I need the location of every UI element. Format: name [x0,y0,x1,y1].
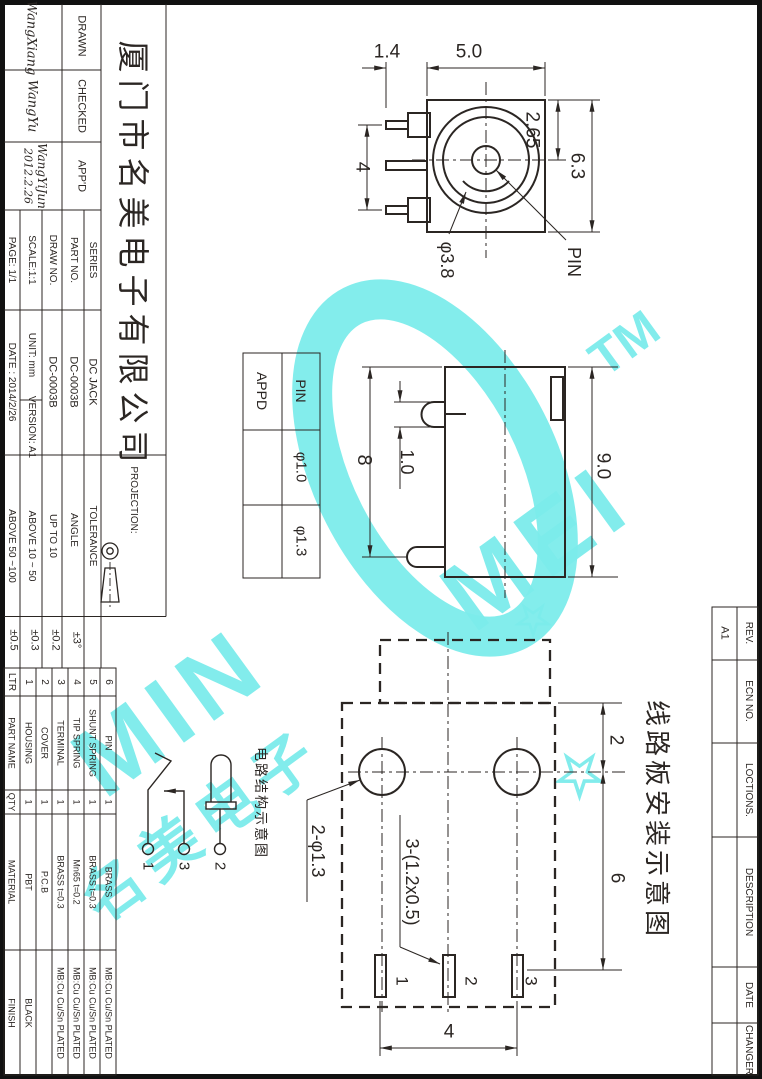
tolerance-value: ±0.5 [8,629,19,650]
bom-qty: 1 [88,799,97,804]
approved-signature: WangYiJun [36,143,48,209]
engineering-drawing-sheet: MIN MEI TM 名美电子 ☆ ☆ [0,0,762,1079]
pad-number: 1 [394,976,411,985]
drawn-signature: WangXiang [25,1,38,76]
projection-label: PROJECTION: [128,466,138,533]
bom-finish: MB:Cu Cu/Sn PLATED [72,967,81,1059]
checked-label: CHECKED [76,79,87,133]
callout-slots: 3-(1.2x0.5) [403,838,421,925]
bom-qty: 1 [104,799,113,804]
rev-date-label: DATE [743,982,753,1008]
bom-material: PBT [24,873,33,891]
bom-part-name: PIN [104,735,113,750]
tolerance-value: ±0.3 [29,629,40,650]
scale-field: SCALE:1:1 [26,235,36,284]
callout-holes: 2-φ1.3 [309,825,327,878]
bom-qty: 1 [56,799,65,804]
dim-pin-pitch: 4 [353,162,372,173]
bom-finish: MB:Cu Cu/Sn PLATED [104,967,113,1059]
series-value: DC JACK [87,358,98,405]
drawn-label: DRAWN [76,15,87,56]
dim-hole-to-pad: 6 [608,873,627,884]
dim-body-width: 5.0 [456,43,482,62]
schematic-title: 电路结构示意图 [254,747,268,859]
dim-side-overall: 9.0 [594,453,613,479]
pin-callout: PIN [565,247,583,277]
bom-finish: MB:Cu Cu/Sn PLATED [88,967,97,1059]
pin-table-appd: APPD [255,372,269,410]
bom-finish: MB:Cu Cu/Sn PLATED [56,967,65,1059]
draw-no-label: DRAW NO. [47,235,57,286]
bom-qty: 1 [24,799,33,804]
ecn-label: ECN NO. [743,680,753,722]
tolerance-label: ABOVE 10 ~ 50 [26,511,36,582]
pad-number: 3 [523,976,540,985]
tolerance-label: UP TO 10 [47,514,57,558]
dim-center-from-top: 2.65 [523,112,542,149]
checked-signature: WangYu [26,80,39,133]
pad-number: 2 [463,976,480,985]
rev-label: REV. [743,622,753,644]
bom-finish: BLACK [24,998,33,1028]
schematic-pin-number: 2 [213,862,228,870]
dim-pin-thickness: 1.0 [398,449,416,474]
unit-field: UNIT: mm [26,333,36,377]
schematic-pin-number: 3 [177,862,192,870]
bom-ltr: 2 [39,679,49,685]
part-no-label: PART NO. [68,237,78,283]
bom-part-name: TERMINAL [56,720,65,766]
bom-header-finish: FINISH [7,998,16,1028]
dim-barrel-dia: φ3.8 [438,242,456,279]
dim-pad-pitch: 4 [444,1023,455,1042]
bom-part-name: SHUNT SPRING [88,709,97,777]
approved-label: APP'D [76,160,87,192]
bom-qty: 1 [72,799,81,804]
part-no-value: DC-0003B [68,356,79,407]
tolerance-header: TOLERANCE [87,506,97,567]
bom-qty: 1 [40,799,49,804]
bom-ltr: 4 [71,679,81,685]
bom-part-name: HOUSING [24,722,33,764]
tolerance-label: ABOVE 50 ~100 [6,509,16,583]
bom-material: BRASS [104,867,113,898]
text-layer: DRAWN CHECKED APP'D WangXiang WangYu Wan… [0,0,762,1079]
bom-part-name: TIP SPRING [72,718,81,769]
bom-part-name: COVER [40,727,49,759]
bom-header-ltr: LTR [6,673,16,691]
dim-pin-offset: 1.4 [374,43,400,62]
bom-ltr: 6 [103,679,113,685]
pin-table-dia-small: φ1.0 [294,452,309,483]
rev-value: A1 [719,626,730,639]
draw-no-value: DC-0003B [47,356,58,407]
version-field: VERSION: A1 [26,396,36,458]
changer-label: CHANGER [743,1025,753,1075]
page-field: PAGE: 1/1 [6,237,16,284]
tolerance-value: ±3° [71,632,82,649]
schematic-pin-number: 1 [141,862,156,870]
pin-table-pin: PIN [294,379,308,402]
dim-hole-from-edge: 2 [607,735,626,746]
pin-table-dia-large: φ1.3 [294,526,309,557]
tolerance-label: ANGLE [68,513,78,547]
company-name: 厦门市名美电子有限公司 [117,40,149,469]
bom-material: BRASS t=0.3 [56,855,65,908]
bom-ltr: 3 [55,679,65,685]
dim-body-height: 6.3 [568,153,587,179]
bom-material: Mn65 t=0.2 [72,859,81,904]
locations-label: LOCTIONS. [743,763,753,817]
bom-material: BRASS t=0.3 [88,855,97,908]
bom-header-qty: QTY [7,793,16,812]
series-label: SERIES [87,242,97,279]
bom-header-material: MATERIAL [7,860,16,904]
approved-date: 2012.2.26 [23,148,34,204]
description-label: DESCRIPTION [743,868,753,936]
bom-ltr: 5 [87,679,97,685]
bom-ltr: 1 [23,679,33,685]
bom-material: P.C.B [40,871,49,893]
date-field: DATE : 2014/2/26 [6,343,16,422]
bom-header-part-name: PART NAME [7,717,16,769]
pcb-view-title: 线路板安装示意图 [644,700,670,940]
tolerance-value: ±0.2 [50,629,61,650]
dim-side-height: 8 [354,454,374,465]
